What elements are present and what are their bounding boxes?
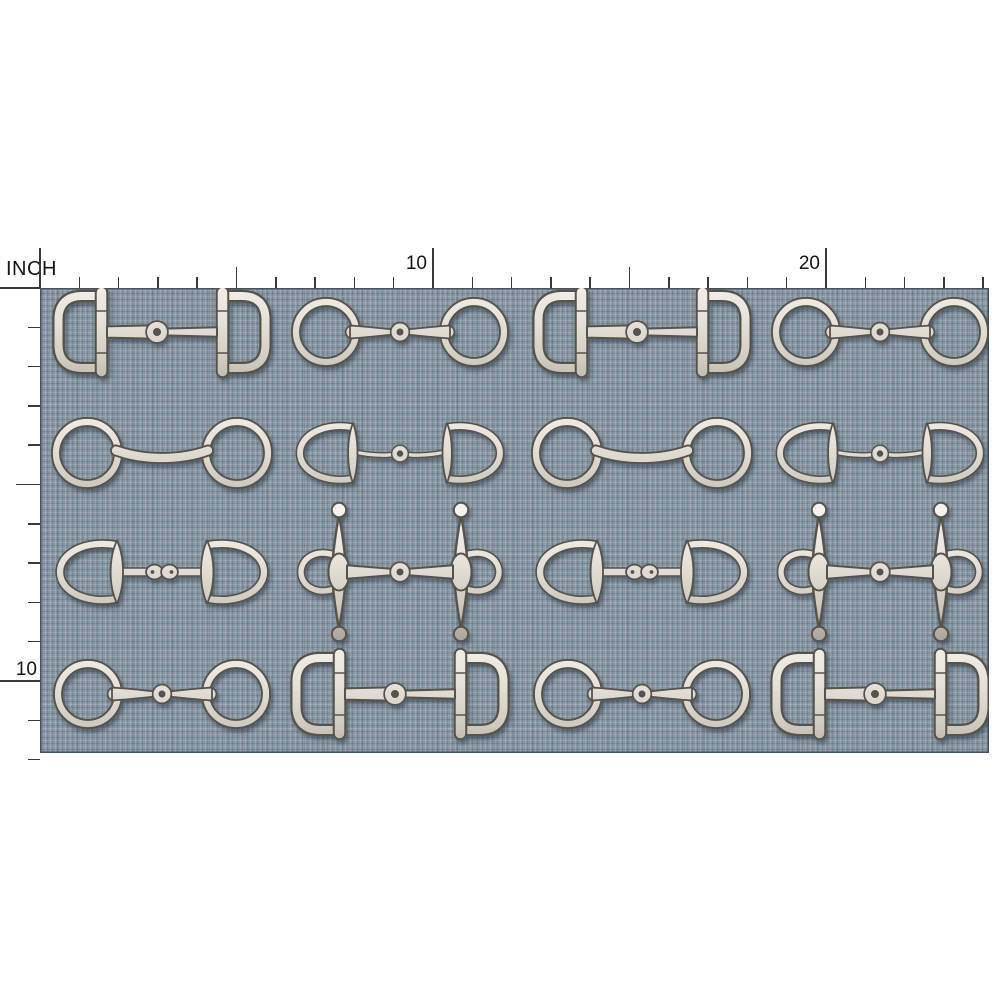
horse-bit-eggbutt-double-joint: [540, 541, 744, 604]
horse-bit-full-cheek-snaffle: [781, 503, 979, 641]
h-ruler-tick-18in: [747, 277, 749, 288]
horse-bit-loose-ring-snaffle: [538, 664, 746, 724]
v-ruler-tick-12in: [28, 759, 40, 761]
horse-bits-pattern: [40, 288, 989, 753]
horse-bit-loose-ring-snaffle: [776, 302, 984, 362]
h-ruler-tick-13in: [550, 277, 552, 288]
h-ruler-tick-23in: [943, 277, 945, 288]
h-ruler-tick-11in: [472, 277, 474, 288]
v-ruler-tick-2in: [28, 366, 40, 368]
horse-bit-loose-ring-snaffle: [296, 302, 504, 362]
v-ruler-tick-0in: [0, 287, 40, 289]
h-ruler-tick-8in: [354, 277, 356, 288]
h-ruler-tick-24in: [982, 277, 984, 288]
ruler-unit-label: INCH: [6, 258, 57, 281]
h-ruler-tick-6in: [275, 277, 277, 288]
horse-bit-d-ring-snaffle: [297, 655, 504, 734]
horse-bit-loose-ring-snaffle: [58, 664, 266, 724]
h-ruler-tick-2in: [118, 277, 120, 288]
horse-bit-eggbutt-snaffle: [780, 423, 980, 483]
horse-bit-d-ring-snaffle: [539, 293, 746, 372]
h-ruler-tick-4in: [196, 277, 198, 288]
h-ruler-tick-20in: [825, 248, 827, 288]
h-ruler-tick-7in: [314, 277, 316, 288]
h-ruler-tick-1in: [79, 277, 81, 288]
h-ruler-tick-16in: [668, 277, 670, 288]
v-ruler-tick-9in: [28, 641, 40, 643]
fabric-preview-canvas: INCH 1020 10: [0, 0, 1000, 1000]
v-ruler-label-10in: 10: [9, 659, 37, 681]
v-ruler-tick-4in: [28, 444, 40, 446]
h-ruler-tick-17in: [707, 277, 709, 288]
v-ruler-tick-1in: [28, 327, 40, 329]
fabric-swatch: [40, 288, 989, 753]
v-ruler-tick-5in: [16, 484, 40, 486]
h-ruler-tick-14in: [589, 277, 591, 288]
h-ruler-tick-3in: [157, 277, 159, 288]
horse-bit-d-ring-snaffle: [777, 655, 984, 734]
horse-bit-d-ring-snaffle: [59, 293, 266, 372]
h-ruler-label-20in: 20: [782, 253, 820, 275]
h-ruler-label-10in: 10: [389, 253, 427, 275]
horse-bit-loose-ring-mullen: [56, 422, 268, 484]
h-ruler-tick-5in: [236, 267, 238, 288]
h-ruler-tick-15in: [629, 267, 631, 288]
v-ruler-tick-8in: [28, 602, 40, 604]
h-ruler-tick-22in: [904, 277, 906, 288]
h-ruler-tick-9in: [393, 277, 395, 288]
h-ruler-tick-12in: [511, 277, 513, 288]
h-ruler-tick-19in: [786, 277, 788, 288]
v-ruler-tick-11in: [28, 720, 40, 722]
horse-bit-loose-ring-mullen: [536, 422, 748, 484]
h-ruler-tick-0in: [39, 248, 41, 288]
v-ruler-tick-6in: [28, 523, 40, 525]
h-ruler-tick-10in: [432, 248, 434, 288]
h-ruler-tick-21in: [865, 277, 867, 288]
horse-bit-eggbutt-snaffle: [300, 423, 500, 483]
v-ruler-tick-3in: [28, 405, 40, 407]
horse-bit-eggbutt-double-joint: [60, 541, 264, 604]
horse-bit-full-cheek-snaffle: [301, 503, 499, 641]
v-ruler-tick-7in: [28, 562, 40, 564]
